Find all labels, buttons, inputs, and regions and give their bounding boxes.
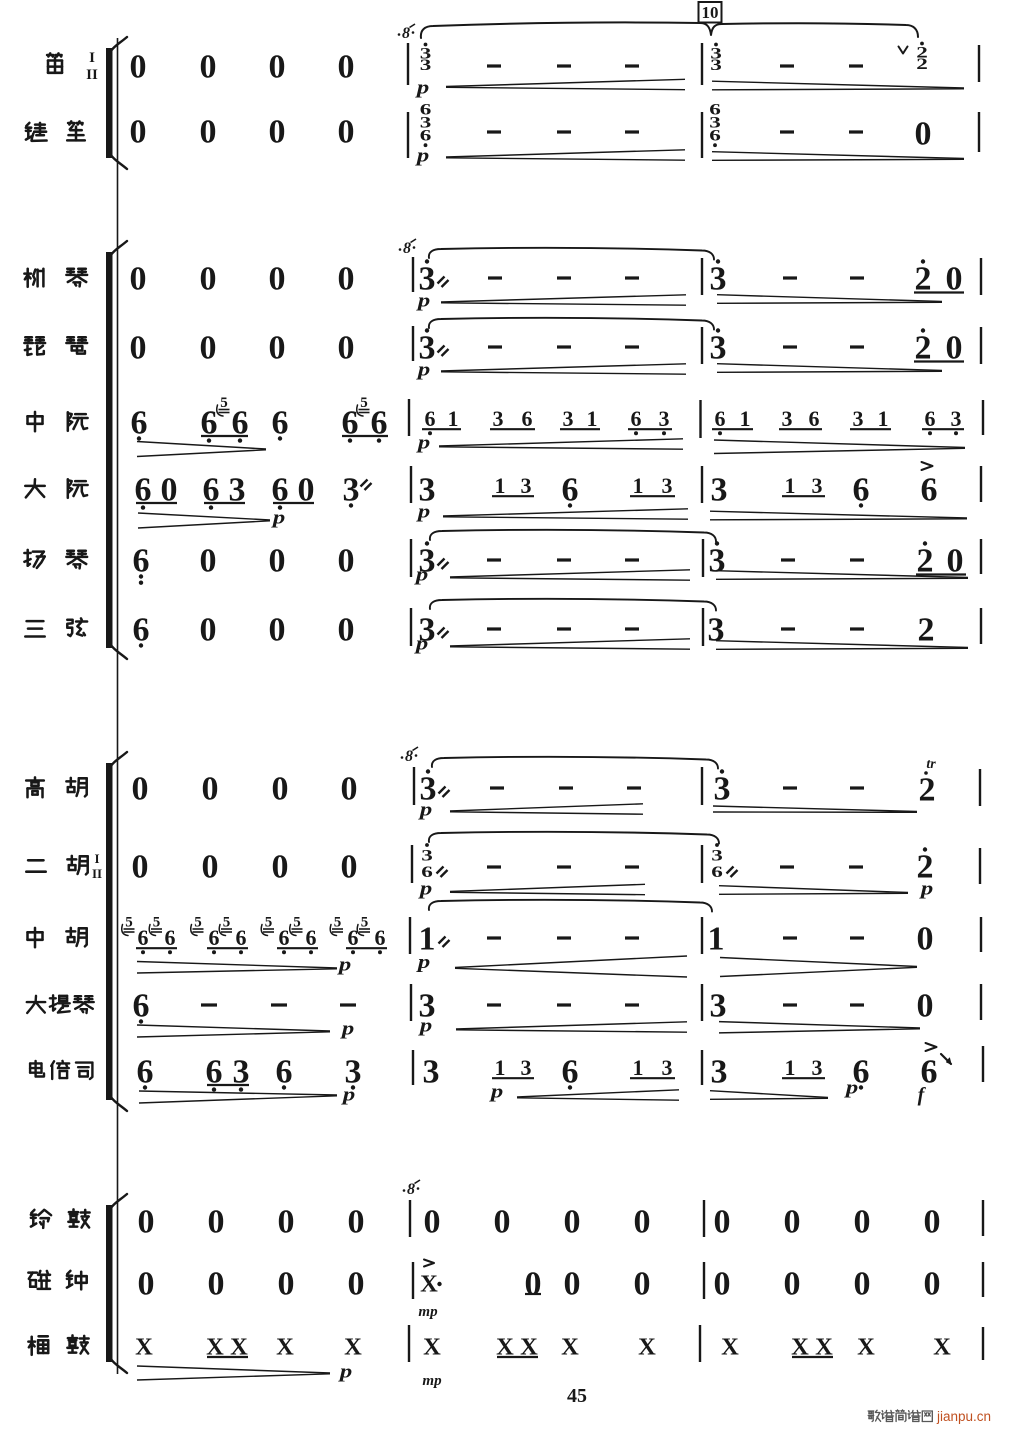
svg-text:p: p xyxy=(844,1076,859,1098)
svg-text:3: 3 xyxy=(711,847,723,865)
svg-text:6: 6 xyxy=(375,925,386,950)
svg-text:1: 1 xyxy=(785,473,796,498)
svg-text:0: 0 xyxy=(130,49,147,86)
svg-text:3: 3 xyxy=(709,543,726,580)
svg-text:6: 6 xyxy=(131,405,148,442)
svg-text:0: 0 xyxy=(208,1266,225,1303)
svg-text:3: 3 xyxy=(951,406,962,431)
svg-text:6: 6 xyxy=(522,406,533,431)
svg-text:6: 6 xyxy=(809,406,820,431)
svg-text:6: 6 xyxy=(709,127,721,145)
svg-text:0: 0 xyxy=(714,1266,731,1303)
svg-text:0: 0 xyxy=(854,1266,871,1303)
svg-text:0: 0 xyxy=(200,261,217,298)
svg-text:0: 0 xyxy=(272,849,289,886)
svg-text:1: 1 xyxy=(740,406,751,431)
svg-text:tr: tr xyxy=(926,757,936,772)
svg-text:0: 0 xyxy=(917,921,934,958)
svg-text:8: 8 xyxy=(402,25,410,42)
svg-text:3: 3 xyxy=(710,261,727,298)
svg-text:3: 3 xyxy=(853,406,864,431)
svg-text:0: 0 xyxy=(200,330,217,367)
svg-text:6: 6 xyxy=(133,612,150,649)
svg-text:6: 6 xyxy=(137,1054,154,1091)
svg-text:0: 0 xyxy=(338,543,355,580)
svg-text:3: 3 xyxy=(710,57,722,75)
svg-text:p: p xyxy=(415,144,430,166)
svg-text:3: 3 xyxy=(343,472,360,509)
svg-text:0: 0 xyxy=(338,49,355,86)
svg-text:0: 0 xyxy=(269,261,286,298)
svg-text:0: 0 xyxy=(132,849,149,886)
svg-text:0: 0 xyxy=(130,261,147,298)
svg-text:p: p xyxy=(337,953,352,975)
svg-text:p: p xyxy=(338,1360,353,1382)
svg-text:6: 6 xyxy=(925,406,936,431)
svg-text:0: 0 xyxy=(784,1204,801,1241)
svg-text:X: X xyxy=(561,1333,579,1360)
svg-text:6: 6 xyxy=(306,925,317,950)
svg-text:6: 6 xyxy=(853,472,870,509)
svg-text:p: p xyxy=(414,632,429,654)
svg-text:1: 1 xyxy=(708,921,725,958)
svg-text:0: 0 xyxy=(634,1266,651,1303)
svg-text:jianpu.cn: jianpu.cn xyxy=(936,1409,991,1424)
svg-text:mp: mp xyxy=(418,1304,438,1320)
svg-text:3: 3 xyxy=(708,612,725,649)
svg-text:8: 8 xyxy=(407,1181,415,1198)
svg-text:0: 0 xyxy=(714,1204,731,1241)
svg-text:1: 1 xyxy=(448,406,459,431)
svg-text:0: 0 xyxy=(200,114,217,151)
svg-text:3: 3 xyxy=(521,1055,532,1080)
svg-text:6: 6 xyxy=(715,406,726,431)
svg-text:p: p xyxy=(418,798,433,820)
svg-text:6: 6 xyxy=(138,925,149,950)
svg-text:0: 0 xyxy=(130,114,147,151)
svg-text:1: 1 xyxy=(878,406,889,431)
svg-text:X: X xyxy=(135,1333,153,1360)
svg-text:0: 0 xyxy=(200,543,217,580)
svg-text:0: 0 xyxy=(341,771,358,808)
svg-text:6: 6 xyxy=(165,925,176,950)
svg-text:0: 0 xyxy=(338,114,355,151)
svg-text:0: 0 xyxy=(278,1266,295,1303)
svg-text:0: 0 xyxy=(525,1266,542,1303)
svg-text:1: 1 xyxy=(495,1055,506,1080)
svg-text:0: 0 xyxy=(564,1204,581,1241)
svg-text:6: 6 xyxy=(562,1054,579,1091)
svg-text:0: 0 xyxy=(138,1266,155,1303)
svg-text:0: 0 xyxy=(634,1204,651,1241)
svg-text:0: 0 xyxy=(338,612,355,649)
svg-text:1: 1 xyxy=(495,473,506,498)
svg-text:X: X xyxy=(933,1333,951,1360)
svg-text:3: 3 xyxy=(423,1054,440,1091)
svg-text:1: 1 xyxy=(633,473,644,498)
svg-text:0: 0 xyxy=(130,330,147,367)
svg-text:II: II xyxy=(86,67,98,83)
svg-text:3: 3 xyxy=(662,1055,673,1080)
svg-text:0: 0 xyxy=(202,771,219,808)
svg-text:6: 6 xyxy=(209,925,220,950)
svg-text:6: 6 xyxy=(133,543,150,580)
svg-text:p: p xyxy=(416,431,431,453)
svg-text:0: 0 xyxy=(348,1204,365,1241)
svg-text:p: p xyxy=(416,289,431,311)
svg-text:0: 0 xyxy=(924,1266,941,1303)
svg-text:p: p xyxy=(341,1083,356,1105)
svg-text:X: X xyxy=(857,1333,875,1360)
svg-text:1: 1 xyxy=(785,1055,796,1080)
svg-text:3: 3 xyxy=(710,330,727,367)
svg-text:45: 45 xyxy=(567,1385,587,1407)
svg-text:3: 3 xyxy=(659,406,670,431)
svg-text:0: 0 xyxy=(132,771,149,808)
svg-text:6: 6 xyxy=(236,925,247,950)
svg-text:p: p xyxy=(489,1080,504,1102)
svg-text:X: X xyxy=(638,1333,656,1360)
svg-text:6: 6 xyxy=(711,863,723,881)
svg-text:1: 1 xyxy=(633,1055,644,1080)
svg-text:3: 3 xyxy=(782,406,793,431)
svg-text:2: 2 xyxy=(916,56,928,74)
svg-text:6: 6 xyxy=(276,1054,293,1091)
svg-text:0: 0 xyxy=(924,1204,941,1241)
svg-text:0: 0 xyxy=(278,1204,295,1241)
svg-text:3: 3 xyxy=(812,1055,823,1080)
svg-text:3: 3 xyxy=(812,473,823,498)
svg-text:p: p xyxy=(414,563,429,585)
svg-text:0: 0 xyxy=(269,49,286,86)
svg-text:2: 2 xyxy=(919,772,936,809)
svg-text:p: p xyxy=(416,358,431,380)
svg-text:0: 0 xyxy=(348,1266,365,1303)
svg-text:I: I xyxy=(89,50,95,66)
svg-text:6: 6 xyxy=(921,472,938,509)
svg-text:0: 0 xyxy=(338,261,355,298)
svg-text:0: 0 xyxy=(200,612,217,649)
svg-text:p: p xyxy=(418,877,433,899)
svg-text:p: p xyxy=(271,506,286,528)
svg-text:0: 0 xyxy=(341,849,358,886)
svg-text:0: 0 xyxy=(338,330,355,367)
svg-text:X: X xyxy=(423,1333,441,1360)
svg-text:p: p xyxy=(418,1014,433,1036)
svg-text:6: 6 xyxy=(425,406,436,431)
svg-text:p: p xyxy=(416,951,431,973)
svg-text:1: 1 xyxy=(587,406,598,431)
svg-text:8: 8 xyxy=(403,240,411,257)
svg-text:0: 0 xyxy=(269,543,286,580)
svg-text:6: 6 xyxy=(272,405,289,442)
svg-text:6: 6 xyxy=(133,988,150,1025)
svg-text:p: p xyxy=(340,1017,355,1039)
svg-text:8: 8 xyxy=(405,748,413,765)
svg-text:3: 3 xyxy=(521,473,532,498)
svg-text:6: 6 xyxy=(420,127,432,145)
svg-text:0: 0 xyxy=(854,1204,871,1241)
svg-text:X: X xyxy=(344,1333,362,1360)
svg-text:0: 0 xyxy=(272,771,289,808)
svg-text:p: p xyxy=(919,877,934,899)
svg-text:0: 0 xyxy=(138,1204,155,1241)
svg-text:0: 0 xyxy=(269,330,286,367)
svg-text:3: 3 xyxy=(711,472,728,509)
svg-text:2: 2 xyxy=(918,612,935,649)
svg-text:X: X xyxy=(420,1271,438,1298)
svg-text:0: 0 xyxy=(424,1204,441,1241)
svg-text:6: 6 xyxy=(279,925,290,950)
svg-text:p: p xyxy=(415,76,430,98)
svg-text:p: p xyxy=(416,500,431,522)
svg-text:6: 6 xyxy=(562,472,579,509)
svg-text:3: 3 xyxy=(493,406,504,431)
svg-text:mp: mp xyxy=(422,1373,442,1389)
svg-text:0: 0 xyxy=(208,1204,225,1241)
svg-text:0: 0 xyxy=(269,114,286,151)
svg-text:X: X xyxy=(276,1333,294,1360)
svg-text:I: I xyxy=(94,851,99,866)
svg-text:6: 6 xyxy=(631,406,642,431)
svg-text:0: 0 xyxy=(917,988,934,1025)
svg-text:3: 3 xyxy=(563,406,574,431)
svg-text:3: 3 xyxy=(711,1054,728,1091)
svg-text:0: 0 xyxy=(200,49,217,86)
svg-text:3: 3 xyxy=(421,847,433,865)
svg-text:3: 3 xyxy=(662,473,673,498)
svg-text:0: 0 xyxy=(269,612,286,649)
svg-text:0: 0 xyxy=(784,1266,801,1303)
svg-text:0: 0 xyxy=(202,849,219,886)
svg-text:3: 3 xyxy=(420,57,432,75)
svg-text:0: 0 xyxy=(494,1204,511,1241)
svg-text:X: X xyxy=(721,1333,739,1360)
svg-text:0: 0 xyxy=(915,116,932,153)
svg-text:II: II xyxy=(92,866,102,881)
svg-text:3: 3 xyxy=(710,988,727,1025)
svg-text:3: 3 xyxy=(714,771,731,808)
svg-text:10: 10 xyxy=(702,3,719,22)
svg-text:0: 0 xyxy=(564,1266,581,1303)
